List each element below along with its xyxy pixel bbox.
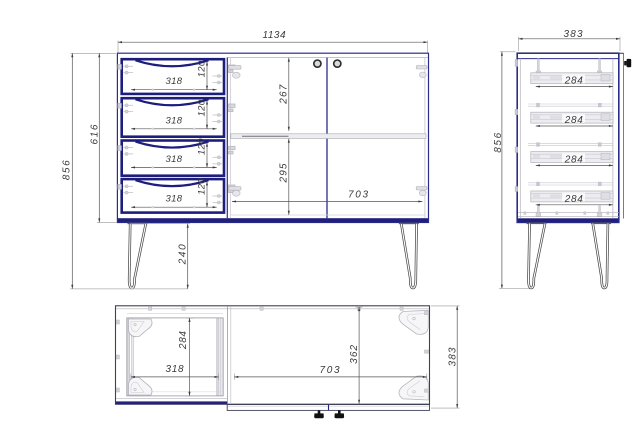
svg-text:383: 383 [447, 347, 458, 366]
svg-text:284: 284 [178, 331, 189, 350]
svg-text:284: 284 [564, 154, 583, 165]
svg-text:240: 240 [178, 244, 189, 265]
svg-text:703: 703 [348, 190, 368, 201]
svg-text:120: 120 [196, 60, 207, 77]
svg-text:1134: 1134 [263, 30, 286, 41]
svg-text:362: 362 [349, 344, 360, 363]
svg-text:318: 318 [166, 154, 183, 165]
svg-text:120: 120 [196, 99, 207, 116]
svg-text:616: 616 [90, 124, 101, 144]
svg-text:318: 318 [166, 76, 183, 87]
svg-text:856: 856 [62, 160, 73, 180]
svg-text:318: 318 [166, 194, 183, 205]
svg-text:267: 267 [279, 84, 290, 104]
svg-text:284: 284 [564, 115, 583, 126]
svg-text:318: 318 [166, 364, 184, 375]
svg-text:295: 295 [279, 163, 290, 183]
svg-text:856: 856 [493, 132, 504, 152]
svg-text:703: 703 [320, 365, 340, 376]
svg-text:318: 318 [166, 115, 183, 126]
svg-text:284: 284 [564, 76, 583, 87]
svg-text:284: 284 [564, 194, 583, 205]
svg-text:120: 120 [196, 138, 207, 155]
svg-text:383: 383 [564, 29, 583, 40]
svg-text:120: 120 [196, 178, 207, 195]
